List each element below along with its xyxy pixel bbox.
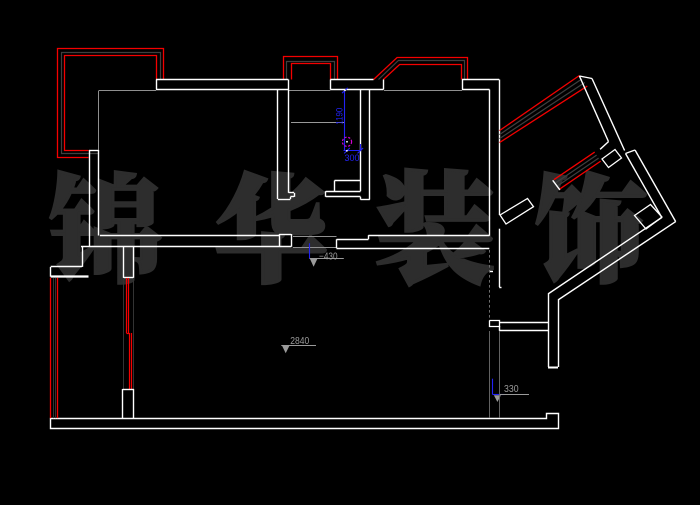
svg-text:300: 300	[345, 153, 360, 164]
svg-text:330: 330	[504, 384, 519, 395]
svg-text:1190: 1190	[335, 108, 346, 125]
svg-text:−430: −430	[319, 251, 338, 262]
svg-text:2840: 2840	[290, 336, 309, 347]
